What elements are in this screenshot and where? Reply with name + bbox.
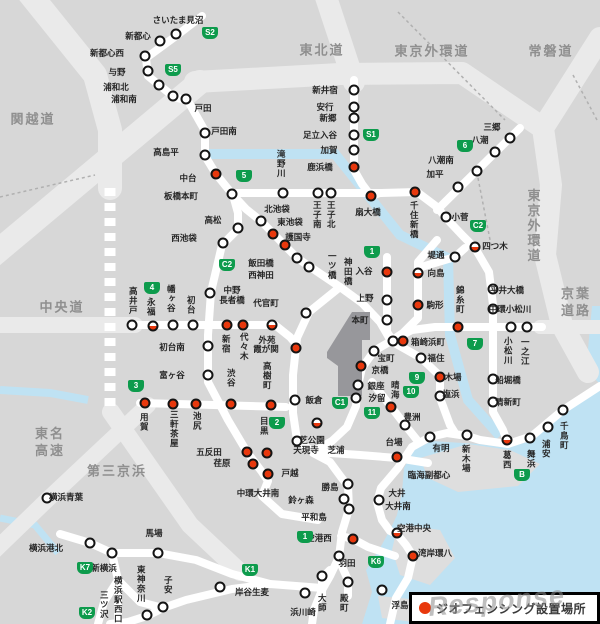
- route-badge: 1: [297, 531, 313, 543]
- route-badge: B: [514, 469, 530, 481]
- station-marker: [301, 308, 312, 319]
- station-label: さいたま見沼: [153, 15, 204, 25]
- station-marker: [154, 80, 165, 91]
- station-marker: [200, 128, 211, 139]
- station-marker: [506, 322, 517, 333]
- station-marker: [525, 433, 536, 444]
- station-label: 扇大橋: [355, 207, 381, 217]
- station-marker: [392, 452, 403, 463]
- station-label: 横浜駅西口: [114, 576, 123, 624]
- station-label: 神田橋: [344, 258, 353, 287]
- station-marker: [453, 182, 464, 193]
- station-marker: [263, 469, 274, 480]
- route-badge: S2: [202, 27, 218, 39]
- highway-label: 東京外環道: [524, 189, 541, 264]
- station-marker: [291, 343, 302, 354]
- station-label: 西神田: [248, 270, 274, 280]
- station-label: 霞が関: [253, 344, 279, 354]
- station-marker: [242, 447, 253, 458]
- station-label: 入谷: [355, 266, 372, 276]
- station-marker: [168, 91, 179, 102]
- station-label: 浜川崎: [290, 607, 316, 617]
- station-label: 箱崎浜町: [411, 337, 445, 347]
- station-label: 幡ヶ谷: [167, 285, 176, 314]
- station-marker: [226, 399, 237, 410]
- station-label: 代々木: [240, 333, 249, 362]
- station-label: 永福: [147, 298, 156, 317]
- station-label: 清新町: [495, 397, 521, 407]
- station-label: 馬場: [145, 528, 162, 538]
- station-marker: [502, 435, 513, 446]
- highway-label: 第三京浜: [87, 464, 147, 481]
- station-marker: [218, 238, 229, 249]
- station-marker: [233, 223, 244, 234]
- station-marker: [374, 495, 385, 506]
- station-marker: [292, 253, 303, 264]
- station-label: 八潮南: [428, 155, 454, 165]
- station-label: 芝公園: [299, 435, 325, 445]
- station-label: 銀座: [367, 381, 384, 391]
- station-marker: [349, 145, 360, 156]
- station-label: 新宿: [222, 335, 231, 354]
- station-marker: [349, 130, 360, 141]
- station-label: 汐留: [368, 393, 385, 403]
- station-label: 本町: [351, 315, 368, 325]
- station-label: 千鳥町: [560, 422, 569, 451]
- station-label: 一ツ橋: [328, 252, 337, 281]
- station-marker: [266, 400, 277, 411]
- station-marker: [142, 610, 153, 621]
- station-marker: [377, 585, 388, 596]
- station-label: 西池袋: [171, 233, 197, 243]
- station-label: 鹿浜橋: [307, 162, 333, 172]
- station-label: 滝野川: [277, 150, 286, 179]
- station-marker: [472, 166, 483, 177]
- station-label: 戸田南: [211, 126, 237, 136]
- station-marker: [453, 322, 464, 333]
- station-label: 横浜青葉: [49, 492, 83, 502]
- station-marker: [143, 66, 154, 77]
- station-label: 大師: [318, 594, 327, 613]
- station-marker: [168, 399, 179, 410]
- station-label: 駒形: [426, 300, 443, 310]
- station-label: 浦和南: [111, 94, 137, 104]
- legend-box: ジオフェンシング設置場所: [409, 592, 600, 624]
- highway-label: 常磐道: [528, 44, 573, 61]
- station-label: 新木場: [462, 445, 471, 474]
- station-label: 千住新橋: [410, 201, 419, 239]
- legend-label: ジオフェンシング設置場所: [436, 600, 586, 617]
- station-marker: [470, 242, 481, 253]
- station-marker: [413, 268, 424, 279]
- station-label: 初台: [187, 296, 196, 315]
- station-marker: [356, 361, 367, 372]
- station-label: 中環小松川: [489, 304, 532, 314]
- route-badge: 7: [467, 338, 483, 350]
- station-marker: [410, 187, 421, 198]
- station-marker: [317, 571, 328, 582]
- station-label: 新横浜: [91, 563, 117, 573]
- station-label: 横浜港北: [29, 543, 63, 553]
- station-label: 板橋本町: [164, 191, 198, 201]
- station-marker: [267, 320, 278, 331]
- station-label: 湾岸環八: [418, 548, 452, 558]
- route-badge: C2: [470, 220, 486, 232]
- station-marker: [353, 380, 364, 391]
- station-label: 与野: [108, 67, 125, 77]
- station-marker: [268, 229, 279, 240]
- station-marker: [408, 551, 419, 562]
- station-label: 堤通: [427, 250, 444, 260]
- station-marker: [349, 102, 360, 113]
- route-badge: 6: [457, 140, 473, 152]
- highway-label: 中央道: [39, 300, 84, 317]
- highway-label: 東北道: [299, 43, 344, 60]
- station-label: 三軒茶屋: [170, 410, 179, 448]
- station-label: 新郷: [319, 113, 336, 123]
- station-label: 飯倉: [305, 395, 322, 405]
- station-label: 加平: [426, 169, 443, 179]
- route-badge: K2: [79, 607, 95, 619]
- station-label: 代官町: [253, 298, 279, 308]
- station-label: 宝町: [377, 353, 394, 363]
- station-marker: [382, 315, 393, 326]
- station-label: 平和島: [301, 512, 327, 522]
- station-label: 四つ木: [482, 241, 508, 251]
- station-marker: [344, 504, 355, 515]
- station-label: 池尻: [193, 412, 202, 431]
- station-marker: [148, 321, 159, 332]
- station-marker: [413, 300, 424, 311]
- station-marker: [158, 602, 169, 613]
- station-label: 東神奈川: [137, 565, 146, 603]
- station-label: 京橋: [371, 365, 388, 375]
- station-marker: [416, 353, 427, 364]
- station-marker: [382, 267, 393, 278]
- station-label: 錦糸町: [456, 286, 465, 315]
- station-label: 浦安: [542, 440, 551, 459]
- station-marker: [140, 51, 151, 62]
- route-badge: C1: [332, 397, 348, 409]
- station-label: 富ヶ谷: [159, 370, 185, 380]
- station-label: 葛西: [503, 451, 512, 470]
- station-marker: [349, 162, 360, 173]
- station-label: 台場: [385, 437, 402, 447]
- route-badge: C2: [219, 259, 235, 271]
- station-marker: [140, 398, 151, 409]
- station-label: 小菅: [451, 212, 468, 222]
- route-badge: K7: [77, 562, 93, 574]
- station-marker: [153, 548, 164, 559]
- station-label: 渋谷: [227, 369, 236, 388]
- station-marker: [351, 393, 362, 404]
- station-label: 羽田: [338, 558, 355, 568]
- route-badge: K1: [242, 564, 258, 576]
- station-marker: [343, 479, 354, 490]
- station-label: 新都心西: [90, 48, 124, 58]
- route-badge: 10: [403, 386, 419, 398]
- station-label: 用賀: [140, 413, 149, 432]
- station-label: 浮島: [391, 600, 408, 610]
- station-label: 五反田: [196, 447, 222, 457]
- station-label: 荏原: [213, 458, 230, 468]
- station-label: 戸越: [281, 468, 298, 478]
- station-label: 晴海: [391, 381, 400, 400]
- station-label: 一之江: [521, 338, 530, 367]
- station-label: 芝浦: [327, 445, 344, 455]
- highway-label: 関越道: [10, 112, 55, 129]
- route-badge: 2: [269, 417, 285, 429]
- station-marker: [211, 169, 222, 180]
- station-marker: [181, 94, 192, 105]
- station-label: 護国寺: [285, 232, 311, 242]
- station-label: 塩浜: [442, 389, 459, 399]
- station-marker: [127, 320, 138, 331]
- station-label: 高松: [204, 215, 221, 225]
- station-label: 加賀: [320, 145, 337, 155]
- route-badge: 1: [364, 246, 380, 258]
- station-marker: [386, 402, 397, 413]
- station-label: 飯田橋: [248, 258, 274, 268]
- station-label: 天現寺: [293, 445, 319, 455]
- station-label: 向島: [427, 268, 444, 278]
- route-badge: K6: [368, 556, 384, 568]
- station-label: 三ツ沢: [100, 591, 109, 620]
- station-marker: [462, 430, 473, 441]
- station-label: 中野 長者橋: [219, 285, 245, 305]
- station-label: 新井宿: [312, 85, 338, 95]
- station-label: 高樹町: [263, 362, 272, 391]
- station-label: 空港中央: [397, 523, 431, 533]
- station-marker: [278, 188, 289, 199]
- station-marker: [326, 188, 337, 199]
- station-marker: [107, 548, 118, 559]
- station-marker: [227, 189, 238, 200]
- station-marker: [262, 448, 273, 459]
- station-marker: [155, 36, 166, 47]
- station-marker: [441, 212, 452, 223]
- station-label: 三郷: [483, 122, 500, 132]
- station-label: 豊洲: [403, 412, 420, 422]
- station-marker: [203, 370, 214, 381]
- station-marker: [171, 29, 182, 40]
- station-marker: [522, 322, 533, 333]
- station-label: 平井大橋: [490, 285, 524, 295]
- station-label: 小松川: [504, 337, 513, 366]
- route-badge: 11: [364, 407, 380, 419]
- station-label: 勝島: [321, 482, 338, 492]
- station-marker: [343, 577, 354, 588]
- station-marker: [505, 133, 516, 144]
- station-label: 八潮: [471, 135, 488, 145]
- station-marker: [290, 395, 301, 406]
- station-marker: [168, 320, 179, 331]
- route-badge: 4: [144, 282, 160, 294]
- station-label: 上野: [356, 293, 373, 303]
- station-marker: [238, 320, 249, 331]
- station-marker: [349, 85, 360, 96]
- station-label: 木場: [444, 372, 461, 382]
- station-marker: [300, 588, 311, 599]
- station-marker: [490, 147, 501, 158]
- station-label: 安行: [316, 102, 333, 112]
- station-label: 船堀橋: [495, 375, 521, 385]
- station-marker: [543, 422, 554, 433]
- route-badge: 3: [128, 380, 144, 392]
- station-label: 戸田: [194, 103, 211, 113]
- station-label: 初台南: [159, 342, 185, 352]
- station-marker: [200, 150, 211, 161]
- station-label: 殿町: [340, 594, 349, 613]
- station-marker: [248, 459, 259, 470]
- station-marker: [398, 336, 409, 347]
- highway-label: 東京外環道: [394, 44, 469, 61]
- station-label: 舞浜: [527, 450, 536, 469]
- station-marker: [450, 252, 461, 263]
- station-marker: [313, 188, 324, 199]
- station-marker: [205, 288, 216, 299]
- station-marker: [348, 534, 359, 545]
- station-label: 高島平: [153, 147, 179, 157]
- station-marker: [215, 582, 226, 593]
- station-label: 子安: [164, 576, 173, 595]
- station-marker: [188, 320, 199, 331]
- station-marker: [256, 216, 267, 227]
- station-label: 新都心: [125, 31, 151, 41]
- expressway-map: ジオフェンシング設置場所 Response さいたま見沼新都心新都心西与野浦和北…: [0, 0, 600, 624]
- legend-red-marker-icon: [419, 602, 431, 614]
- route-badge: 5: [236, 170, 252, 182]
- station-label: 足立入谷: [303, 130, 337, 140]
- station-label: 臨海副都心: [408, 470, 451, 480]
- station-label: 有明: [432, 443, 449, 453]
- station-marker: [203, 341, 214, 352]
- station-label: 王子南: [313, 201, 322, 230]
- station-marker: [85, 538, 96, 549]
- station-marker: [222, 320, 233, 331]
- station-marker: [425, 432, 436, 443]
- route-badge: S1: [363, 129, 379, 141]
- highway-label: 東名 高速: [35, 426, 65, 460]
- route-badge: S5: [165, 64, 181, 76]
- station-marker: [366, 191, 377, 202]
- station-label: 王子北: [327, 201, 336, 230]
- station-label: 中台: [179, 173, 196, 183]
- station-label: 福住: [427, 353, 444, 363]
- station-label: 岸谷生麦: [235, 587, 269, 597]
- station-label: 大井南: [385, 501, 411, 511]
- station-marker: [382, 295, 393, 306]
- station-marker: [349, 113, 360, 124]
- station-label: 中環大井南: [237, 488, 280, 498]
- station-marker: [304, 262, 315, 273]
- station-label: 浦和北: [103, 82, 129, 92]
- station-marker: [388, 336, 399, 347]
- station-label: 東池袋: [277, 217, 303, 227]
- station-label: 大井: [388, 488, 405, 498]
- highway-label: 京葉 道路: [561, 286, 591, 320]
- station-label: 北池袋: [264, 204, 290, 214]
- route-badge: 9: [409, 372, 425, 384]
- station-label: 鈴ヶ森: [288, 495, 314, 505]
- station-label: 目黒: [260, 417, 269, 436]
- station-marker: [312, 418, 323, 429]
- station-marker: [191, 399, 202, 410]
- station-marker: [558, 405, 569, 416]
- station-label: 高井戸: [129, 287, 138, 316]
